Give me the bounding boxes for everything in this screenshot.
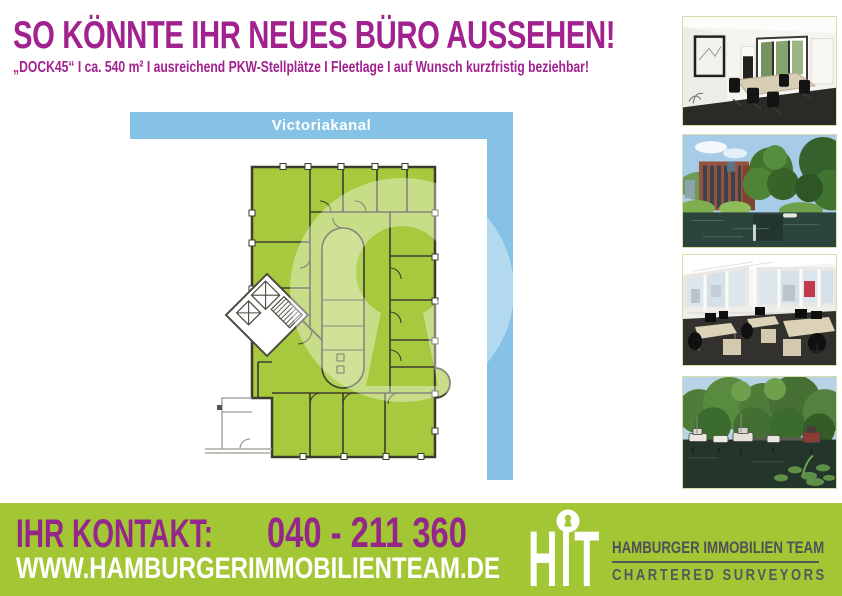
footer-contact-bar: IHR KONTAKT: 040 - 211 360 WWW.HAMBURGER… (0, 503, 842, 596)
canal-boats-photo (682, 376, 837, 489)
canal-label: Victoriakanal (272, 117, 372, 134)
flyer: SO KÖNNTE IHR NEUES BÜRO AUSSEHEN! „DOCK… (0, 0, 842, 596)
neighbour-structure (205, 398, 272, 453)
hit-logo-line2: CHARTERED SURVEYORS (612, 567, 827, 585)
contact-label: IHR KONTAKT: (16, 512, 213, 557)
hit-logo-line1: HAMBURGER IMMOBILIEN TEAM (612, 538, 824, 558)
website-url: WWW.HAMBURGERIMMOBILIENTEAM.DE (16, 552, 500, 586)
keyhole-icon (556, 509, 580, 533)
office-building-canal-photo (682, 134, 837, 248)
hit-logo-divider (612, 561, 819, 563)
meeting-room-photo (682, 16, 837, 126)
canal-label-bar: Victoriakanal (130, 112, 513, 139)
open-plan-office-photo (682, 254, 837, 366)
plan-marker (217, 405, 222, 410)
phone-number: 040 - 211 360 (267, 509, 467, 558)
hit-keyhole-watermark (290, 178, 514, 402)
